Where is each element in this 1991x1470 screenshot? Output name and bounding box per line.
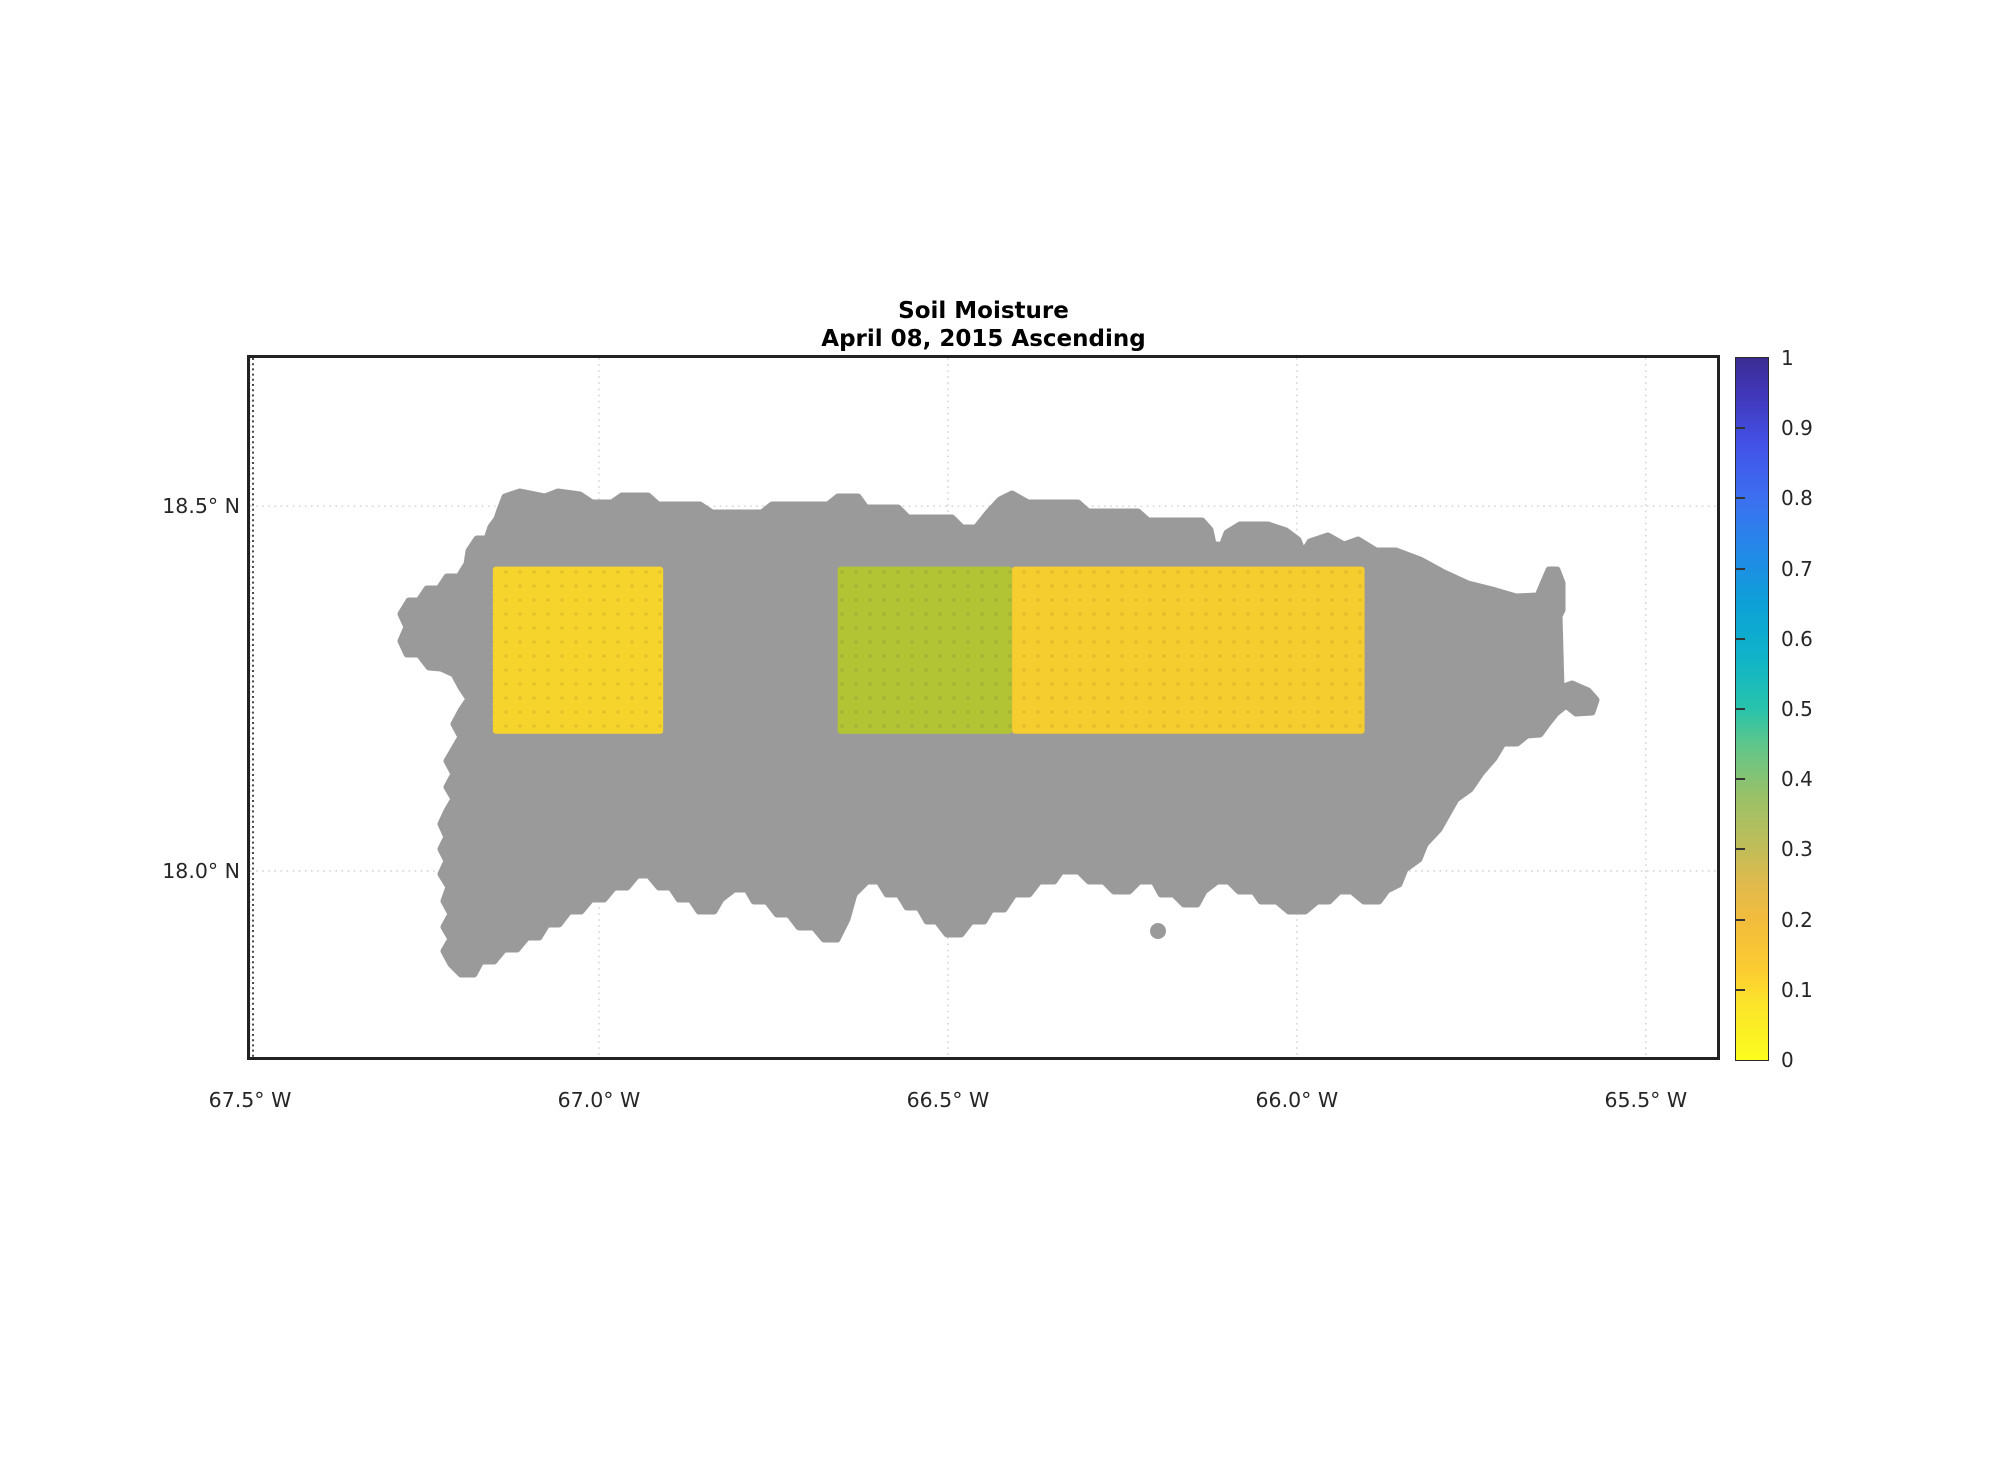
colorbar-tick	[1736, 427, 1745, 429]
colorbar-tick	[1736, 848, 1745, 850]
colorbar-tick-label: 0.8	[1781, 485, 1851, 511]
soil-moisture-cells	[493, 567, 1365, 734]
cell-dot-texture	[838, 567, 1012, 734]
colorbar-tick	[1736, 989, 1745, 991]
soil-moisture-figure: Soil Moisture April 08, 2015 Ascending 6…	[0, 0, 1991, 1470]
colorbar-tick	[1736, 708, 1745, 710]
x-tick-label: 67.5° W	[170, 1088, 330, 1112]
colorbar-tick	[1736, 497, 1745, 499]
colorbar-tick-label: 0.6	[1781, 626, 1851, 652]
chart-title: Soil Moisture April 08, 2015 Ascending	[250, 297, 1717, 353]
colorbar-tick-label: 0.7	[1781, 556, 1851, 582]
colorbar-tick-label: 0	[1781, 1047, 1851, 1073]
map-plot-area	[247, 355, 1720, 1060]
x-tick-label: 66.0° W	[1217, 1088, 1377, 1112]
colorbar-tick	[1736, 778, 1745, 780]
colorbar-tick-label: 0.9	[1781, 415, 1851, 441]
colorbar-tick-label: 0.2	[1781, 907, 1851, 933]
colorbar-tick	[1736, 919, 1745, 921]
colorbar-tick-label: 0.3	[1781, 836, 1851, 862]
chart-title-line1: Soil Moisture	[250, 297, 1717, 325]
colorbar-tick-label: 1	[1781, 345, 1851, 371]
x-tick-label: 65.5° W	[1566, 1088, 1726, 1112]
map-svg	[250, 358, 1717, 1057]
offshore-islet	[1150, 923, 1166, 939]
colorbar-tick-label: 0.1	[1781, 977, 1851, 1003]
cell-dot-texture	[493, 567, 663, 734]
colorbar-tick	[1736, 568, 1745, 570]
cell-dot-texture	[1012, 567, 1364, 734]
y-tick-label: 18.0° N	[90, 857, 240, 885]
colorbar-tick-label: 0.4	[1781, 766, 1851, 792]
colorbar-tick	[1736, 638, 1745, 640]
colorbar-tick-label: 0.5	[1781, 696, 1851, 722]
x-tick-label: 67.0° W	[519, 1088, 679, 1112]
y-tick-label: 18.5° N	[90, 492, 240, 520]
chart-title-line2: April 08, 2015 Ascending	[250, 325, 1717, 353]
x-tick-label: 66.5° W	[868, 1088, 1028, 1112]
figure-canvas: { "figure": { "title_line1": "Soil Moist…	[0, 0, 1991, 1470]
